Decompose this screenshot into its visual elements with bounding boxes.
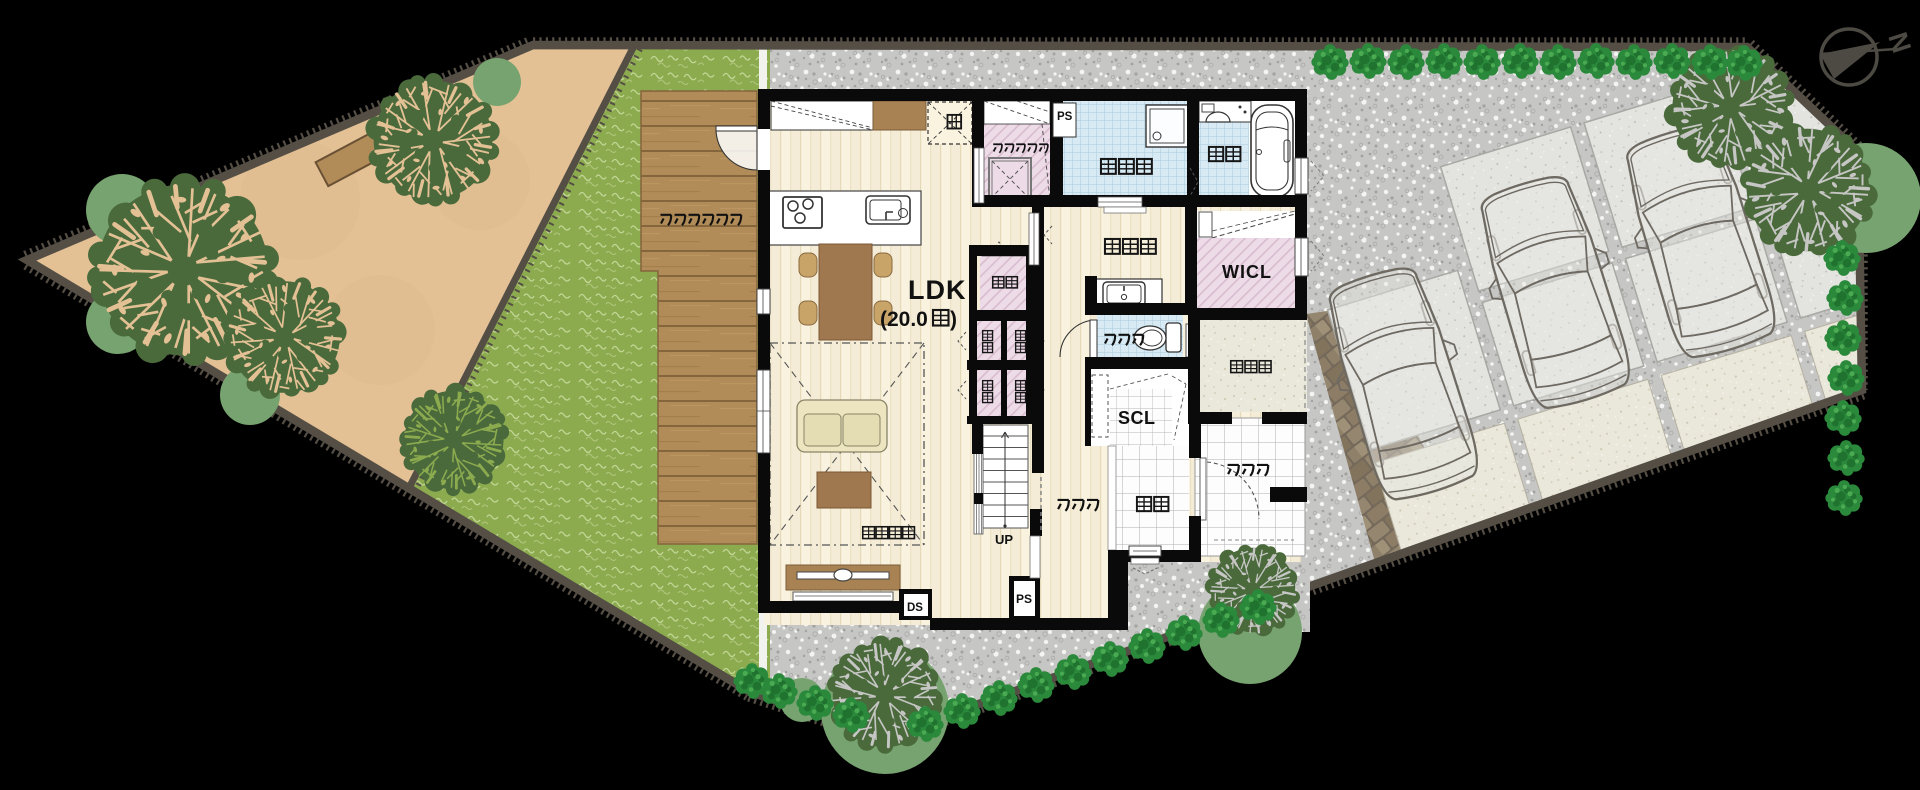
svg-text:): ) (950, 308, 957, 331)
svg-text:UP: UP (995, 532, 1013, 547)
svg-text:LDK: LDK (908, 275, 967, 305)
svg-text:PS: PS (1057, 111, 1073, 123)
svg-text:WICL: WICL (1222, 262, 1272, 282)
svg-text:PS: PS (1016, 592, 1032, 606)
svg-text:(20.0: (20.0 (880, 308, 928, 331)
svg-text:SCL: SCL (1118, 408, 1156, 428)
svg-text:DS: DS (907, 602, 923, 614)
